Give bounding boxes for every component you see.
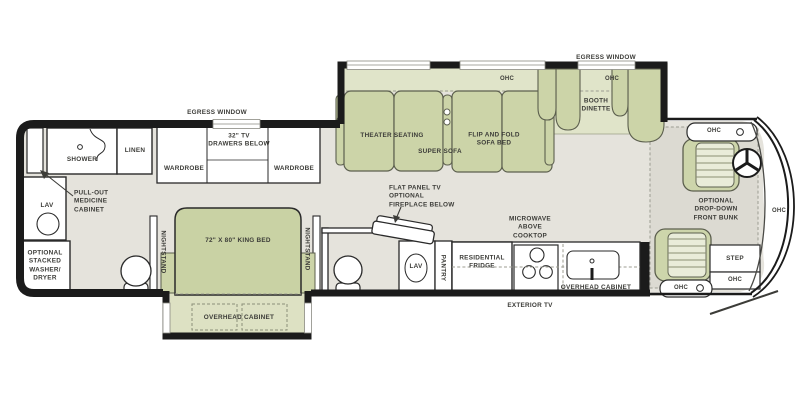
cab-ohc-top-knob	[737, 129, 744, 136]
shower-drain	[78, 145, 83, 150]
egress-window-front	[578, 61, 635, 70]
step-well	[710, 245, 760, 272]
bed-head-band	[170, 292, 306, 336]
king-bed	[175, 208, 301, 295]
cupholder	[444, 119, 450, 125]
rear-lav-sink	[37, 213, 59, 235]
nightstand-right-label: NIGHTSTAND	[304, 227, 311, 270]
burner	[530, 248, 544, 262]
medicine-cabinet	[27, 128, 43, 173]
faucet	[590, 259, 594, 263]
step-ohc	[710, 272, 760, 289]
linen-closet	[117, 128, 152, 174]
bedroom-cabinet-band	[157, 126, 320, 183]
cab-ohc-top	[687, 123, 757, 141]
shower	[47, 128, 117, 174]
toilet-bowl	[121, 256, 151, 286]
washer-dryer-cabinet	[21, 241, 70, 291]
nightstand-wall-left	[150, 216, 157, 290]
sofa-cushion	[452, 91, 502, 172]
burner	[523, 266, 536, 279]
theater-seat	[344, 91, 394, 171]
toilet-bowl	[334, 256, 362, 284]
egress-window-rear	[213, 120, 260, 129]
midbath-lav-sink	[405, 254, 427, 282]
floorplan-drawing	[0, 0, 800, 400]
cupholder	[444, 109, 450, 115]
pantry-label: PANTRY	[440, 255, 447, 282]
driver-seat-pad	[696, 143, 734, 187]
booth-bench	[556, 69, 580, 130]
booth-bench	[538, 69, 556, 120]
passenger-seat-pad	[668, 233, 706, 277]
theater-seat	[394, 91, 443, 171]
theater-armrest	[443, 95, 452, 165]
slide-window	[347, 61, 430, 70]
slide-window	[460, 61, 545, 70]
midbath-top-wall	[322, 228, 378, 233]
burner	[540, 266, 553, 279]
fridge	[452, 242, 512, 294]
booth-bench	[612, 69, 628, 116]
cab-ohc-pill-knob	[697, 285, 704, 292]
nightstand-left-label: NIGHTSTAND	[160, 230, 167, 273]
booth-bench	[628, 69, 664, 142]
midbath-wall	[322, 228, 328, 295]
rv-floorplan: EGRESS WINDOW EGRESS WINDOW 32" TV DRAWE…	[0, 0, 800, 400]
